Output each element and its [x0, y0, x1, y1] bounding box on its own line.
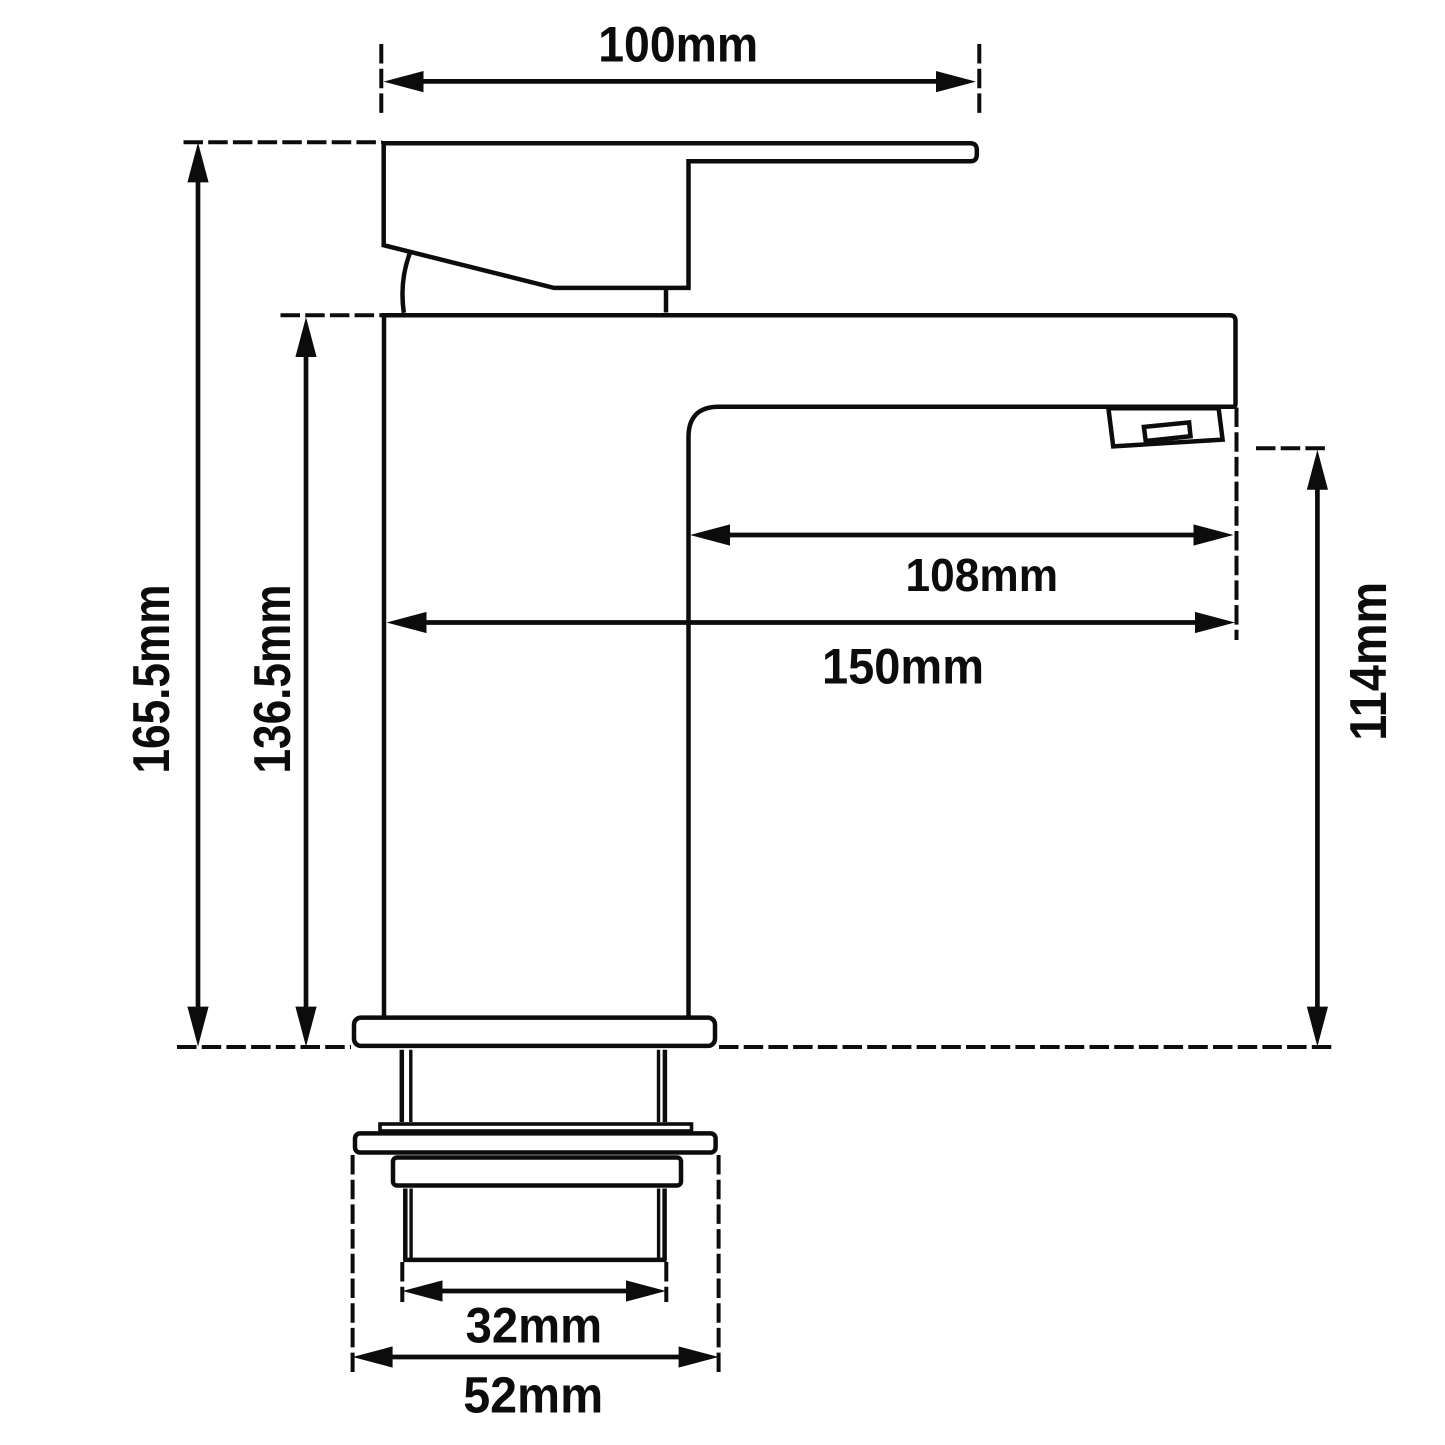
svg-text:100mm: 100mm	[598, 17, 758, 73]
svg-text:108mm: 108mm	[906, 549, 1059, 601]
svg-text:32mm: 32mm	[466, 1297, 603, 1353]
svg-text:52mm: 52mm	[463, 1366, 603, 1423]
svg-text:114mm: 114mm	[1340, 582, 1398, 741]
svg-text:150mm: 150mm	[822, 639, 984, 695]
svg-text:136.5mm: 136.5mm	[244, 585, 302, 774]
svg-text:165.5mm: 165.5mm	[123, 585, 181, 774]
